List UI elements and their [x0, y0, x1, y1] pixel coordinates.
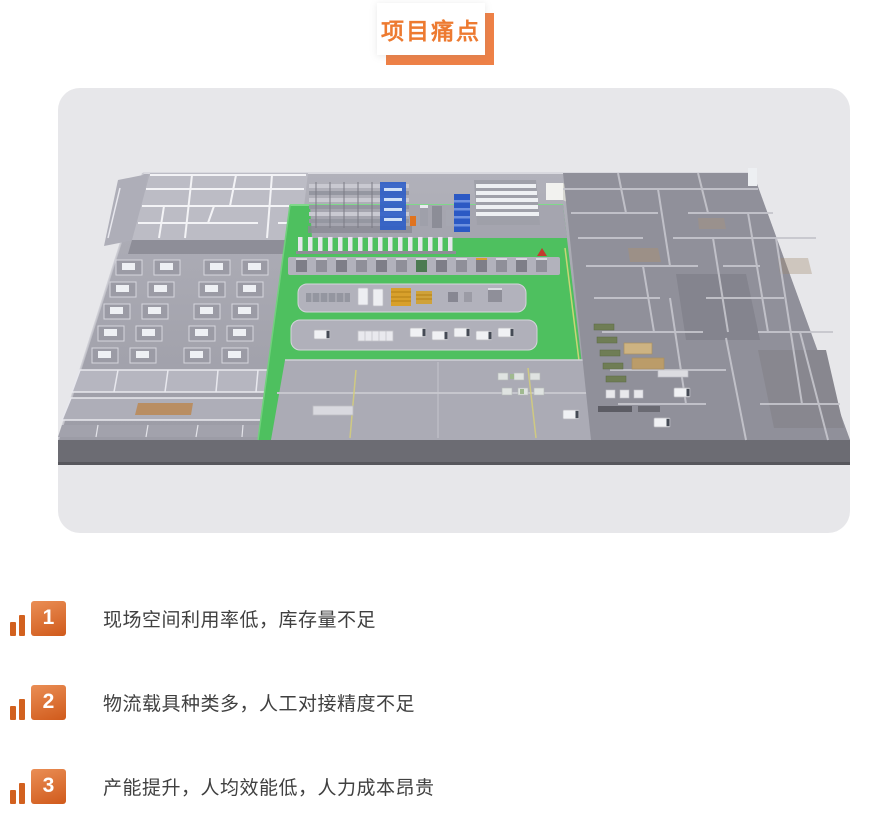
section-header: 项目痛点 — [0, 0, 878, 65]
pain-point-item-1: 1 现场空间利用率低，库存量不足 — [0, 600, 878, 636]
page-title: 项目痛点 — [381, 12, 481, 46]
pain-point-list: 1 现场空间利用率低，库存量不足 2 物流载具种类多，人工对接精度不足 3 产能… — [0, 600, 878, 804]
warehouse-rooms — [563, 168, 850, 440]
bar-chart-number-icon: 1 — [10, 601, 66, 636]
bar-tall — [19, 699, 25, 720]
pallet-stack — [416, 291, 432, 304]
forklift — [410, 216, 416, 226]
staging-area — [271, 360, 621, 440]
bar-tall — [19, 783, 25, 804]
white-pillar — [748, 168, 757, 186]
bar-tall — [19, 615, 25, 636]
pain-point-text: 现场空间利用率低，库存量不足 — [103, 605, 376, 632]
bar-chart-number-icon: 2 — [10, 685, 66, 720]
pain-point-item-2: 2 物流载具种类多，人工对接精度不足 — [0, 684, 878, 720]
factory-image-card — [58, 88, 850, 533]
pain-point-item-3: 3 产能提升，人均效能低，人力成本昂贵 — [0, 768, 878, 804]
assembly-line — [288, 257, 560, 275]
number-badge: 2 — [31, 685, 66, 720]
number-badge: 1 — [31, 601, 66, 636]
agv-pallet-area — [298, 284, 526, 312]
factory-3d-render — [58, 88, 850, 533]
pain-point-text: 物流载具种类多，人工对接精度不足 — [103, 689, 415, 716]
title-badge: 项目痛点 — [377, 3, 485, 55]
bar-short — [10, 622, 16, 636]
bar-chart-number-icon: 3 — [10, 769, 66, 804]
pain-point-text: 产能提升，人均效能低，人力成本昂贵 — [103, 773, 435, 800]
agv — [358, 288, 368, 305]
office-block — [104, 173, 308, 254]
bar-short — [10, 790, 16, 804]
white-pillar — [546, 183, 563, 200]
number-badge: 3 — [31, 769, 66, 804]
agv — [373, 289, 383, 306]
bar-short — [10, 706, 16, 720]
truck-loading-area — [291, 320, 537, 350]
